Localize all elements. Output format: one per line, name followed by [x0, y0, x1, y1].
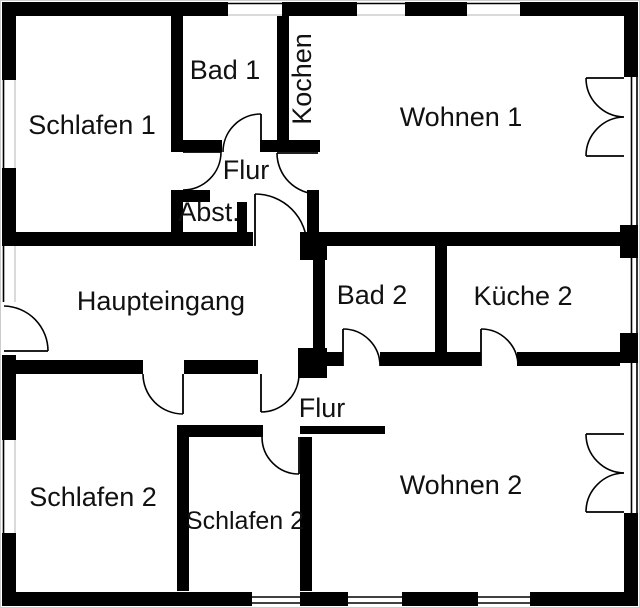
wall-segment [2, 232, 253, 246]
wall-segment [2, 2, 16, 80]
wall-segment [260, 140, 320, 152]
wall-segment [307, 190, 319, 232]
room-label-wohnen-1: Wohnen 1 [400, 102, 523, 132]
wall-segment [405, 2, 467, 16]
wall-segment [300, 592, 348, 606]
room-label-schlafen-2-mitte: Schlafen 2 [186, 507, 304, 535]
wall-segment [620, 225, 638, 258]
wall-segment [300, 426, 385, 434]
room-label-kochen: Kochen [287, 33, 317, 125]
wall-segment [520, 2, 638, 16]
wall-segment [435, 246, 447, 352]
wall-segment [171, 16, 183, 152]
wall-segment [380, 352, 481, 366]
room-label-schlafen-2-links: Schlafen 2 [29, 482, 157, 512]
room-label-flur-unten: Flur [299, 393, 346, 423]
wall-junction [298, 348, 327, 378]
wall-segment [177, 425, 263, 437]
wall-segment [282, 2, 357, 16]
wall-segment [2, 2, 228, 16]
wall-segment [530, 592, 638, 606]
wall-segment [2, 533, 16, 606]
wall-segment [624, 2, 638, 77]
wall-segment [327, 352, 343, 366]
room-label-abst: Abst. [178, 197, 240, 227]
wall-segment [184, 360, 258, 374]
floor-plan: Schlafen 1 Bad 1 Kochen Wohnen 1 Flur Ab… [0, 0, 640, 608]
room-label-bad-2: Bad 2 [337, 280, 408, 310]
room-label-kueche-2: Küche 2 [473, 281, 572, 311]
room-label-schlafen-1: Schlafen 1 [28, 110, 156, 140]
wall-segment [402, 592, 478, 606]
wall-segment [305, 232, 620, 246]
wall-segment [313, 246, 325, 352]
floor-plan-svg: Schlafen 1 Bad 1 Kochen Wohnen 1 Flur Ab… [0, 0, 640, 608]
room-label-flur-oben: Flur [223, 155, 270, 185]
wall-segment [517, 352, 620, 366]
wall-segment [2, 592, 252, 606]
room-label-bad-1: Bad 1 [190, 55, 261, 85]
room-label-wohnen-2: Wohnen 2 [400, 470, 523, 500]
room-label-haupteingang: Haupteingang [77, 286, 245, 316]
wall-segment [620, 333, 638, 363]
wall-segment [2, 360, 143, 374]
wall-segment [624, 513, 638, 606]
